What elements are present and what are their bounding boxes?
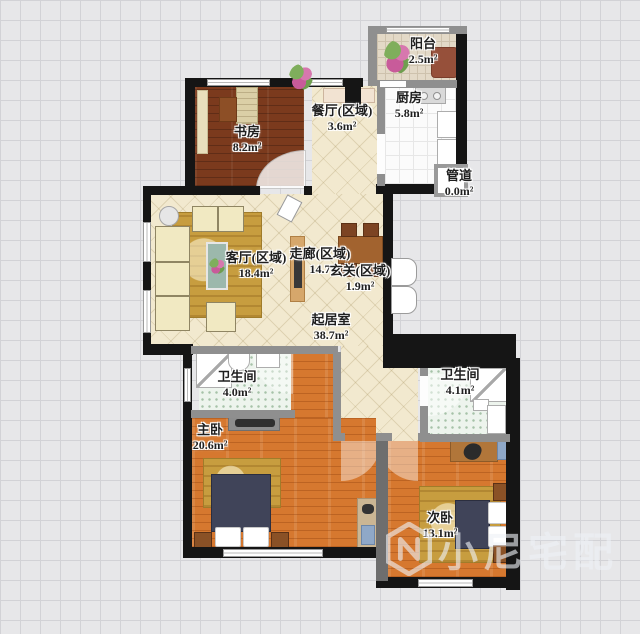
window-master-bottom bbox=[223, 549, 323, 557]
kitchen-door-opening bbox=[377, 134, 385, 174]
second-bed-blanket[interactable] bbox=[455, 500, 490, 549]
room-name: 餐厅(区域) bbox=[312, 103, 373, 119]
living-sofa-left[interactable] bbox=[155, 226, 190, 331]
room-name: 厨房 bbox=[395, 90, 424, 106]
room-name: 起居室 bbox=[311, 312, 350, 328]
label-second: 次卧 13.1m² bbox=[423, 510, 458, 541]
room-name: 卫生间 bbox=[440, 367, 479, 383]
room-name: 阳台 bbox=[409, 36, 438, 52]
living-side-table-top[interactable] bbox=[159, 206, 179, 226]
room-area: 4.0m² bbox=[217, 385, 256, 400]
label-foyer-zone: 玄关(区域) 1.9m² bbox=[330, 263, 391, 294]
room-area: 5.8m² bbox=[395, 106, 424, 121]
wall-bath-left-bottom bbox=[191, 410, 295, 418]
room-area: 1.9m² bbox=[330, 279, 391, 294]
wardrobe-item-dark bbox=[362, 504, 374, 514]
wall-east-lower bbox=[506, 358, 520, 590]
wall-study-left bbox=[185, 78, 195, 190]
pillow bbox=[488, 526, 507, 548]
balcony-door-opening bbox=[380, 81, 406, 87]
floor-plan-canvas: 阳台 2.5m² 厨房 5.8m² 餐厅(区域) 3.6m² 书房 8.2m² … bbox=[0, 0, 640, 634]
second-bed-pillows[interactable] bbox=[488, 502, 507, 547]
wall-corridor-end-pillar bbox=[376, 433, 392, 441]
wall-balcony-left bbox=[368, 26, 377, 86]
window-study-top bbox=[207, 79, 270, 86]
label-living-room: 起居室 38.7m² bbox=[311, 312, 350, 343]
room-area: 18.4m² bbox=[226, 266, 287, 281]
pillow bbox=[243, 527, 269, 547]
study-closet[interactable] bbox=[197, 90, 208, 154]
study-bed-runner[interactable] bbox=[236, 87, 258, 124]
room-name: 管道 bbox=[445, 168, 474, 184]
room-name: 玄关(区域) bbox=[330, 263, 391, 279]
room-name: 卫生间 bbox=[217, 369, 256, 385]
room-area: 13.1m² bbox=[423, 526, 458, 541]
master-bed-blanket[interactable] bbox=[211, 474, 271, 532]
entry-door-leaf-top bbox=[391, 258, 417, 286]
label-kitchen: 厨房 5.8m² bbox=[395, 90, 424, 121]
window-living-left-1 bbox=[143, 222, 151, 262]
room-area: 2.5m² bbox=[409, 52, 438, 67]
wall-notch bbox=[383, 334, 516, 368]
room-area: 8.2m² bbox=[233, 140, 262, 155]
bath-right-door-opening bbox=[420, 376, 428, 406]
label-living-zone: 客厅(区域) 18.4m² bbox=[226, 250, 287, 281]
room-master-strip-floor[interactable] bbox=[291, 354, 333, 418]
room-name: 次卧 bbox=[423, 510, 458, 526]
wall-bath-right-bottom bbox=[420, 434, 510, 442]
room-name: 客厅(区域) bbox=[226, 250, 287, 266]
room-name: 主卧 bbox=[193, 422, 228, 438]
wall-bath-left-top bbox=[191, 346, 338, 354]
living-table-flowers[interactable] bbox=[209, 258, 225, 274]
bath-right-sink[interactable] bbox=[487, 405, 506, 434]
room-name: 书房 bbox=[233, 124, 262, 140]
window-living-left-2 bbox=[143, 290, 151, 333]
master-bed-pillows[interactable] bbox=[215, 527, 269, 547]
window-bath-left bbox=[184, 368, 191, 402]
pillow bbox=[215, 527, 241, 547]
wall-corridor-left bbox=[333, 352, 341, 441]
entry-door-leaf-bottom bbox=[391, 286, 417, 314]
room-area: 4.1m² bbox=[440, 383, 479, 398]
dining-chair-2[interactable] bbox=[363, 223, 379, 237]
wall-corridor-end-a bbox=[333, 433, 345, 441]
label-bath-right: 卫生间 4.1m² bbox=[440, 367, 479, 398]
wardrobe-item-blue bbox=[361, 525, 375, 545]
dining-chair-1[interactable] bbox=[341, 223, 357, 237]
wall-master-second-divider bbox=[376, 441, 388, 581]
study-desk[interactable] bbox=[219, 97, 237, 122]
room-area: 20.6m² bbox=[193, 438, 228, 453]
stove-burner-right bbox=[433, 92, 441, 100]
balcony-flowers[interactable] bbox=[384, 40, 410, 74]
window-balcony bbox=[386, 27, 450, 33]
label-balcony: 阳台 2.5m² bbox=[409, 36, 438, 67]
window-second-bottom bbox=[418, 579, 473, 587]
room-area: 38.7m² bbox=[311, 328, 350, 343]
master-dresser-top bbox=[235, 419, 275, 427]
label-study: 书房 8.2m² bbox=[233, 124, 262, 155]
living-sofa-top[interactable] bbox=[192, 206, 244, 232]
label-duct: 管道 0.0m² bbox=[445, 168, 474, 199]
study-plant[interactable] bbox=[289, 64, 313, 90]
wall-study-bottom bbox=[143, 186, 260, 195]
master-wardrobe[interactable] bbox=[357, 498, 378, 548]
room-area: 3.6m² bbox=[312, 119, 373, 134]
room-name: 走廊(区域) bbox=[290, 246, 351, 262]
room-area: 0.0m² bbox=[445, 184, 474, 199]
wall-study-bottom-stub bbox=[304, 186, 312, 195]
pillow bbox=[488, 502, 507, 524]
label-bath-left: 卫生间 4.0m² bbox=[217, 369, 256, 400]
living-armchair[interactable] bbox=[206, 302, 236, 332]
label-master: 主卧 20.6m² bbox=[193, 422, 228, 453]
label-dining: 餐厅(区域) 3.6m² bbox=[312, 103, 373, 134]
